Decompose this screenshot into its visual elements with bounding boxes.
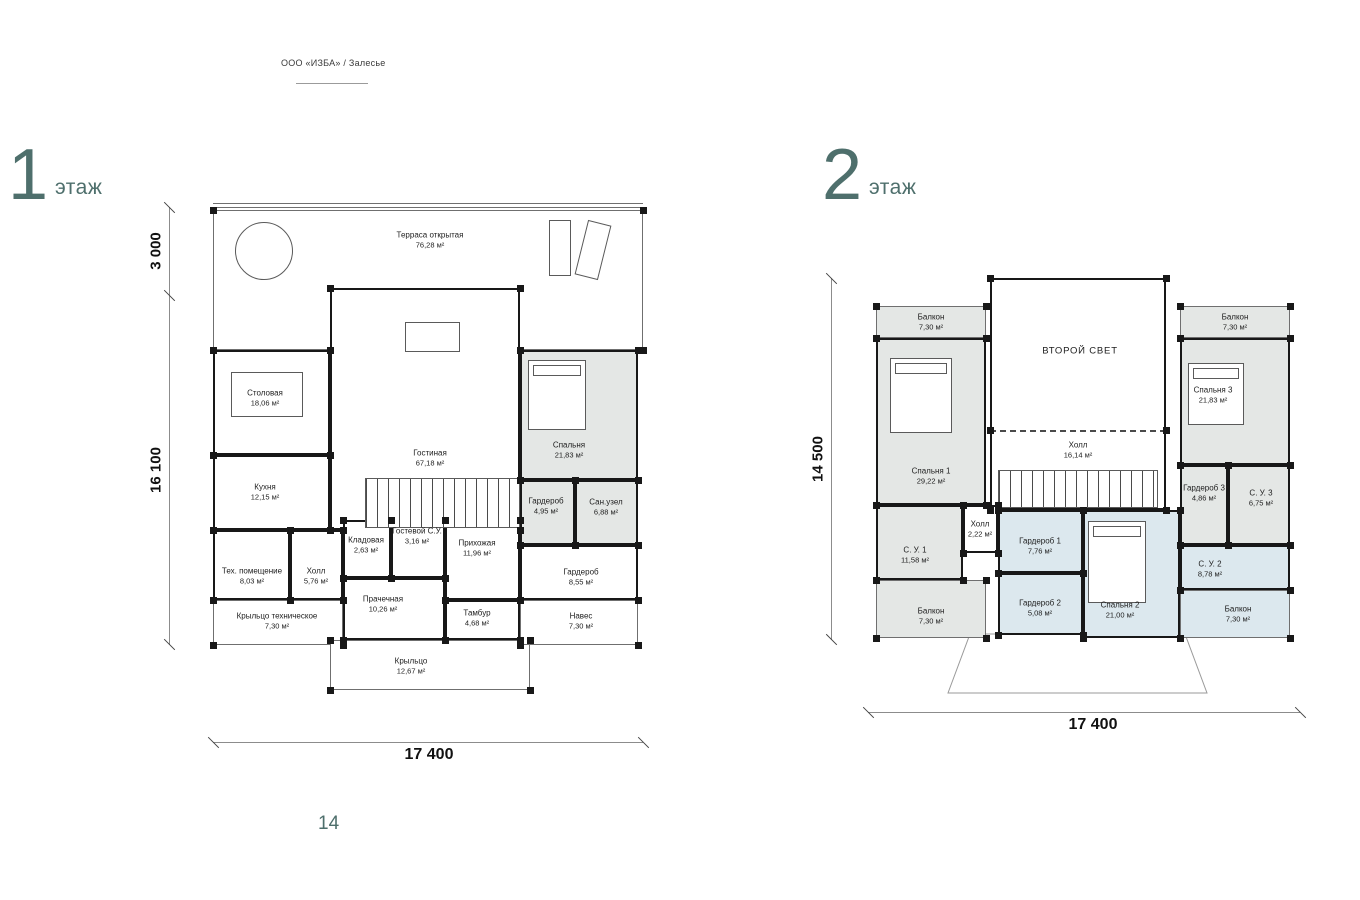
circle-icon (235, 222, 293, 280)
room-label-holl: Холл5,76 м² (304, 567, 328, 586)
wall-post (987, 427, 994, 434)
wall-post (640, 207, 647, 214)
room-label-su-1: С. У. 111,58 м² (901, 546, 929, 565)
wall-post (442, 597, 449, 604)
room-su-1 (876, 505, 963, 580)
room-label-garderob-855: Гардероб8,55 м² (563, 568, 598, 587)
wall-post (327, 347, 334, 354)
room-label-naves: Навес7,30 м² (569, 612, 593, 631)
rect-icon (549, 220, 571, 276)
room-garderob-3 (1180, 465, 1228, 545)
room-label-garderob-495: Гардероб4,95 м² (528, 497, 563, 516)
wall-post (388, 517, 395, 524)
floor2-vertical-dim-line (831, 278, 832, 640)
floor2-heading: 2 этаж (822, 147, 916, 203)
wall-post (210, 642, 217, 649)
dim-tick (863, 707, 874, 718)
wall-post (1287, 635, 1294, 642)
wall-post (1287, 587, 1294, 594)
room-prihozhaya (445, 520, 520, 600)
room-label-teh-pomeschenie: Тех. помещение8,03 м² (222, 567, 282, 586)
floor2-dim-17400: 17 400 (1069, 716, 1118, 734)
floor1-bottom-dim-line (213, 742, 643, 743)
wall-post (517, 517, 524, 524)
floor2-bottom-dim-line (868, 712, 1300, 713)
wall-post (517, 477, 524, 484)
wall-post (635, 347, 642, 354)
wall-post (983, 635, 990, 642)
room-label-gostevoy-su: Гостевой С.У.3,16 м² (392, 527, 442, 546)
wall-post (340, 637, 347, 644)
room-label-gostinaya: Гостиная67,18 м² (413, 449, 447, 468)
wall-post (327, 527, 334, 534)
wall-post (287, 597, 294, 604)
room-label-spalnya-3: Спальня 321,83 м² (1194, 386, 1233, 405)
bed-icon (890, 358, 952, 433)
dim-tick (1295, 707, 1306, 718)
wall-post (517, 285, 524, 292)
room-label-su-3: С. У. 36,75 м² (1249, 489, 1273, 508)
wall-post (287, 527, 294, 534)
wall-post (995, 632, 1002, 639)
floor1-number: 1 (8, 147, 48, 203)
wall-post (327, 452, 334, 459)
wall-post (527, 637, 534, 644)
wall-post (517, 542, 524, 549)
wall-post (873, 502, 880, 509)
wall-post (1080, 635, 1087, 642)
wall-post (1080, 570, 1087, 577)
wall-post (210, 527, 217, 534)
wall-post (635, 542, 642, 549)
floor1-plan: Терраса открытая76,28 м²Столовая18,06 м²… (213, 200, 643, 690)
wall-post (340, 575, 347, 582)
room-label-prihozhaya: Прихожая11,96 м² (458, 539, 495, 558)
floor1-vertical-dim-line (169, 207, 170, 645)
room-label-garderob-3: Гардероб 34,86 м² (1183, 484, 1225, 503)
wall-post (517, 597, 524, 604)
room-label-kuhnya: Кухня12,15 м² (251, 483, 280, 502)
wall-post (340, 517, 347, 524)
dim-tick (164, 202, 175, 213)
rect-icon (405, 322, 460, 352)
wall-post (873, 303, 880, 310)
wall-post (327, 285, 334, 292)
wall-post (1177, 587, 1184, 594)
room-label-kryltso-teh: Крыльцо техническое7,30 м² (237, 612, 318, 631)
room-label-terrasa: Терраса открытая76,28 м² (397, 231, 464, 250)
wall-post (983, 335, 990, 342)
floor2-plan: ВТОРОЙ СВЕТХолл16,14 м²Балкон7,30 м²Спал… (868, 278, 1300, 640)
bed-icon (528, 360, 586, 430)
wall-post (1177, 303, 1184, 310)
wall-post (1163, 427, 1170, 434)
room-label-holl-2: Холл2,22 м² (968, 520, 992, 539)
room-label-su-2: С. У. 28,78 м² (1198, 560, 1222, 579)
wall-post (1177, 507, 1184, 514)
wall-post (960, 577, 967, 584)
room-label-balkon-br: Балкон7,30 м² (1225, 605, 1252, 624)
floor2-word: этаж (869, 176, 916, 203)
wall-post (210, 347, 217, 354)
room-label-vtoroy-svet: ВТОРОЙ СВЕТ (1042, 346, 1118, 357)
wall-post (572, 542, 579, 549)
wall-post (527, 687, 534, 694)
room-su-2 (1180, 545, 1290, 590)
page-number: 14 (318, 813, 339, 835)
room-label-spalnya-1: Спальня 129,22 м² (912, 467, 951, 486)
wall-post (995, 550, 1002, 557)
room-label-tambur: Тамбур4,68 м² (463, 609, 490, 628)
wall-post (1163, 507, 1170, 514)
wall-post (1287, 462, 1294, 469)
wall-post (873, 577, 880, 584)
wall-post (1177, 335, 1184, 342)
wall-post (517, 347, 524, 354)
room-label-garderob-1: Гардероб 17,76 м² (1019, 537, 1061, 556)
room-label-holl-16: Холл16,14 м² (1064, 441, 1093, 460)
wall-post (388, 575, 395, 582)
room-label-sanuzel: Сан.узел6,88 м² (589, 498, 622, 517)
room-label-balkon-tr: Балкон7,30 м² (1222, 313, 1249, 332)
floor1-dim-16100: 16 100 (148, 447, 165, 493)
wall-post (983, 303, 990, 310)
wall-post (572, 477, 579, 484)
floor1-heading: 1 этаж (8, 147, 102, 203)
floor1-word: этаж (55, 176, 102, 203)
wall-post (442, 637, 449, 644)
room-label-garderob-2: Гардероб 25,08 м² (1019, 599, 1061, 618)
floor2-number: 2 (822, 147, 862, 203)
company-title: ООО «ИЗБА» / Залесье (281, 58, 386, 68)
wall-post (442, 517, 449, 524)
wall-post (873, 335, 880, 342)
wall-post (1287, 335, 1294, 342)
wall-post (1163, 275, 1170, 282)
wall-post (960, 550, 967, 557)
bed-icon (1088, 521, 1146, 603)
dim-tick (208, 737, 219, 748)
wall-post (442, 575, 449, 582)
dim-tick (164, 290, 175, 301)
wall-post (960, 502, 967, 509)
room-label-balkon-tl: Балкон7,30 м² (918, 313, 945, 332)
room-kryltso (330, 640, 530, 690)
wall-post (1080, 507, 1087, 514)
wall-post (517, 527, 524, 534)
floor1-dim-3000: 3 000 (148, 232, 165, 270)
wall-post (873, 635, 880, 642)
floor1-dim-17400: 17 400 (405, 746, 454, 764)
room-label-kladovaya: Кладовая2,63 м² (348, 536, 384, 555)
wall-post (327, 637, 334, 644)
wall-post (635, 477, 642, 484)
wall-post (635, 597, 642, 604)
room-holl (290, 530, 343, 600)
wall-post (635, 642, 642, 649)
room-label-stolovaya: Столовая18,06 м² (247, 389, 283, 408)
wall-post (327, 687, 334, 694)
stairs-icon (998, 470, 1158, 508)
dim-tick (638, 737, 649, 748)
company-underline (296, 83, 368, 84)
wall-post (210, 207, 217, 214)
room-label-spalnya-2: Спальня 221,00 м² (1101, 601, 1140, 620)
dim-tick (826, 634, 837, 645)
page: { "header": { "company": "ООО «ИЗБА» / З… (0, 0, 1360, 900)
wall-post (340, 527, 347, 534)
wall-post (1177, 542, 1184, 549)
room-label-spalnya: Спальня21,83 м² (553, 441, 585, 460)
wall-post (517, 642, 524, 649)
wall-post (1177, 635, 1184, 642)
room-teh-pomeschenie (213, 530, 290, 600)
wall-post (1177, 462, 1184, 469)
wall-post (210, 452, 217, 459)
wall-post (1225, 542, 1232, 549)
floor2-dim-14500: 14 500 (810, 436, 827, 482)
wall-post (987, 275, 994, 282)
dim-tick (164, 639, 175, 650)
wall-post (210, 597, 217, 604)
wall-post (983, 502, 990, 509)
wall-post (995, 570, 1002, 577)
wall-post (1287, 542, 1294, 549)
dim-tick (826, 273, 837, 284)
room-label-prachechnaya: Прачечная10,26 м² (363, 595, 403, 614)
wall-post (995, 507, 1002, 514)
wall-post (340, 597, 347, 604)
wall-post (1287, 303, 1294, 310)
room-label-kryltso: Крыльцо12,67 м² (395, 657, 428, 676)
wall-post (1225, 462, 1232, 469)
wall-post (983, 577, 990, 584)
room-label-balkon-bl: Балкон7,30 м² (918, 607, 945, 626)
